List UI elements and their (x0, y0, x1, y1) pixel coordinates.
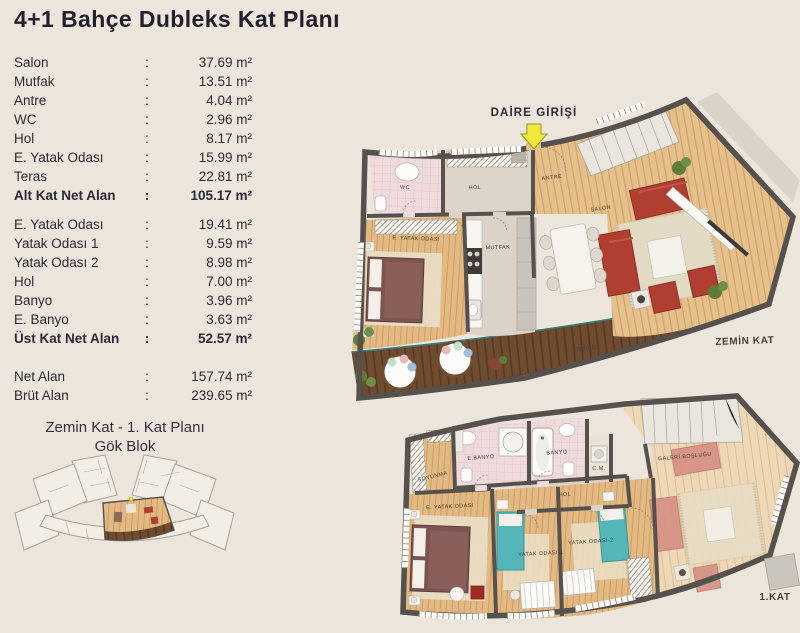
room-label-laundry: C.M. (592, 466, 605, 472)
key-plan-highlighted-unit (103, 497, 174, 540)
area-row: Hol:8.17 m² (14, 129, 252, 148)
area-row: Hol:7.00 m² (14, 272, 252, 291)
page-title: 4+1 Bahçe Dubleks Kat Planı (14, 6, 340, 33)
area-row: Brüt Alan:239.65 m² (14, 386, 252, 405)
area-row: Alt Kat Net Alan:105.17 m² (14, 186, 252, 205)
floor-label-1kat: 1.KAT (759, 592, 790, 603)
key-plan-entrance-dot (129, 497, 133, 501)
bed (410, 525, 470, 593)
area-row: WC:2.96 m² (14, 110, 252, 129)
chair (510, 590, 520, 600)
area-row: Yatak Odası 2:8.98 m² (14, 253, 252, 272)
room-label-hall: HOL (559, 492, 572, 499)
bed (366, 257, 424, 323)
area-table-upper-floor-section: E. Yatak Odası:19.41 m²Yatak Odası 1:9.5… (14, 215, 252, 348)
bed (598, 505, 630, 562)
area-row: Salon:37.69 m² (14, 53, 252, 72)
key-plan-caption-line1: Zemin Kat - 1. Kat Planı (14, 418, 236, 437)
room-label-wc: WC (400, 185, 410, 192)
area-row: Banyo:3.96 m² (14, 291, 252, 310)
pouf (471, 586, 484, 599)
armchair (649, 281, 681, 313)
side-table (631, 289, 651, 309)
area-row: Üst Kat Net Alan:52.57 m² (14, 329, 252, 348)
area-row: Antre:4.04 m² (14, 91, 252, 110)
wardrobe (375, 220, 457, 234)
area-row: Yatak Odası 1:9.59 m² (14, 234, 252, 253)
area-row: Net Alan:157.74 m² (14, 367, 252, 386)
wardrobe (627, 557, 653, 599)
laundry-machine (591, 446, 607, 462)
master-bedroom-furniture (409, 510, 488, 605)
area-table: Salon:37.69 m²Mutfak:13.51 m²Antre:4.04 … (14, 53, 252, 405)
entrance-label: DAİRE GİRİŞİ (491, 106, 578, 119)
floor-label-zemin-kat: ZEMİN KAT (715, 333, 775, 348)
balcony-slab (764, 554, 799, 591)
area-row: Mutfak:13.51 m² (14, 72, 252, 91)
area-table-lower-floor-section: Salon:37.69 m²Mutfak:13.51 m²Antre:4.04 … (14, 53, 252, 205)
floor-plan-page: 4+1 Bahçe Dubleks Kat Planı Salon:37.69 … (0, 0, 800, 633)
area-table-totals-section: Net Alan:157.74 m²Brüt Alan:239.65 m² (14, 367, 252, 405)
dining-set (538, 221, 609, 296)
room-label-hol: HOL (469, 185, 482, 191)
first-floor-plan: SOYUNMA E.BANYO BANYO C.M. HOL GALERİ BO… (395, 388, 800, 633)
bed (497, 512, 524, 570)
desk (520, 581, 556, 609)
site-key-plan (10, 452, 238, 574)
area-row: Teras:22.81 m² (14, 167, 252, 186)
coffee-table (647, 236, 687, 279)
area-row: E. Banyo:3.63 m² (14, 310, 252, 329)
room-label-kitchen: MUTFAK (486, 245, 511, 252)
key-plan-caption: Zemin Kat - 1. Kat Planı Gök Blok (14, 418, 236, 456)
desk (562, 568, 596, 595)
area-row: E. Yatak Odası:19.41 m² (14, 215, 252, 234)
area-row: E. Yatak Odası:15.99 m² (14, 148, 252, 167)
ground-floor-plan: DAİRE GİRİŞİ WC HOL ANTRE SALON E. YATAK… (345, 92, 800, 427)
